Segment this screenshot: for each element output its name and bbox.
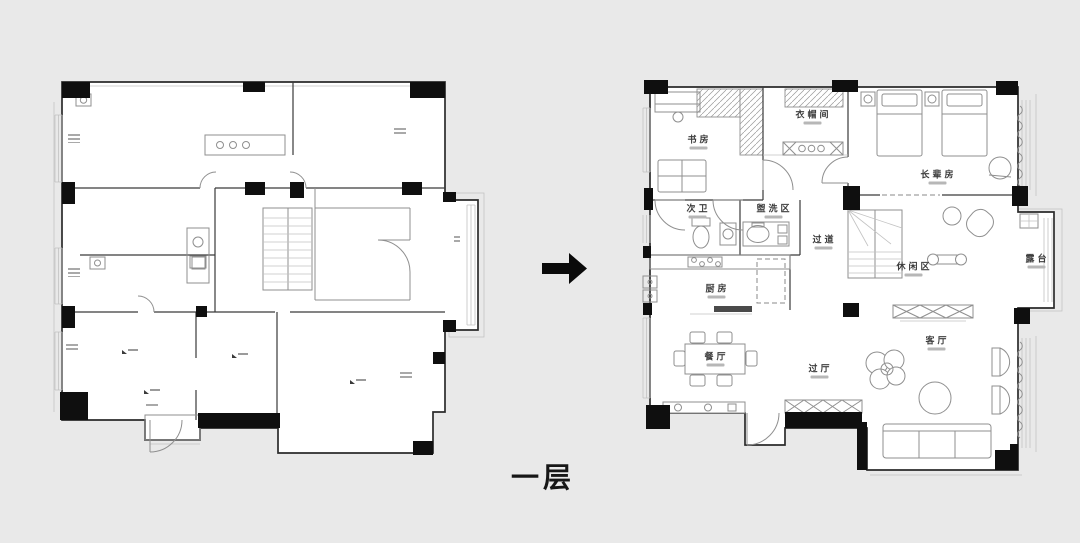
floor-caption: 一层: [511, 462, 575, 494]
elevation-marker: [350, 380, 366, 384]
room-label-wash-area: 盥洗区: [756, 204, 789, 219]
dimension-annotation: [146, 404, 158, 406]
dimension-annotation: [66, 344, 78, 350]
elevation-marker: [232, 354, 248, 358]
room-label-hallway: 过厅: [808, 364, 829, 379]
room-label-leisure-area: 休闲区: [896, 262, 929, 277]
room-label-dining-room: 餐厅: [704, 352, 725, 367]
room-label-corridor: 过道: [812, 235, 833, 250]
elevation-marker: [122, 350, 138, 354]
balcony-annotation: [454, 236, 460, 242]
room-label-cloakroom: 衣帽间: [795, 110, 828, 125]
right-arrow-icon: [542, 252, 588, 285]
plant-icon: [866, 350, 905, 389]
room-label-terrace: 露台: [1025, 254, 1046, 269]
room-label-living-room: 客厅: [925, 336, 946, 351]
dimension-annotation: [68, 134, 80, 143]
room-label-kitchen: 厨房: [705, 284, 726, 299]
left-plan-drawing: [50, 60, 490, 490]
room-label-study: 书房: [687, 135, 708, 150]
left-plan-original-structure: [50, 60, 490, 490]
elevation-marker: [144, 390, 160, 394]
right-plan-furnished-layout: 书房 衣帽间 长辈房 次卫 盥洗区 过道 休闲区 露台 厨房 餐厅 过厅 客厅: [630, 60, 1080, 490]
room-label-elders-room: 长辈房: [920, 170, 953, 185]
room-label-second-bath: 次卫: [686, 204, 707, 219]
dimension-annotation: [400, 372, 412, 378]
dimension-annotation: [68, 268, 80, 277]
right-plan-drawing: [630, 60, 1080, 490]
dimension-annotation: [394, 128, 406, 134]
floor-plan-comparison: 书房 衣帽间 长辈房 次卫 盥洗区 过道 休闲区 露台 厨房 餐厅 过厅 客厅 …: [0, 0, 1080, 543]
